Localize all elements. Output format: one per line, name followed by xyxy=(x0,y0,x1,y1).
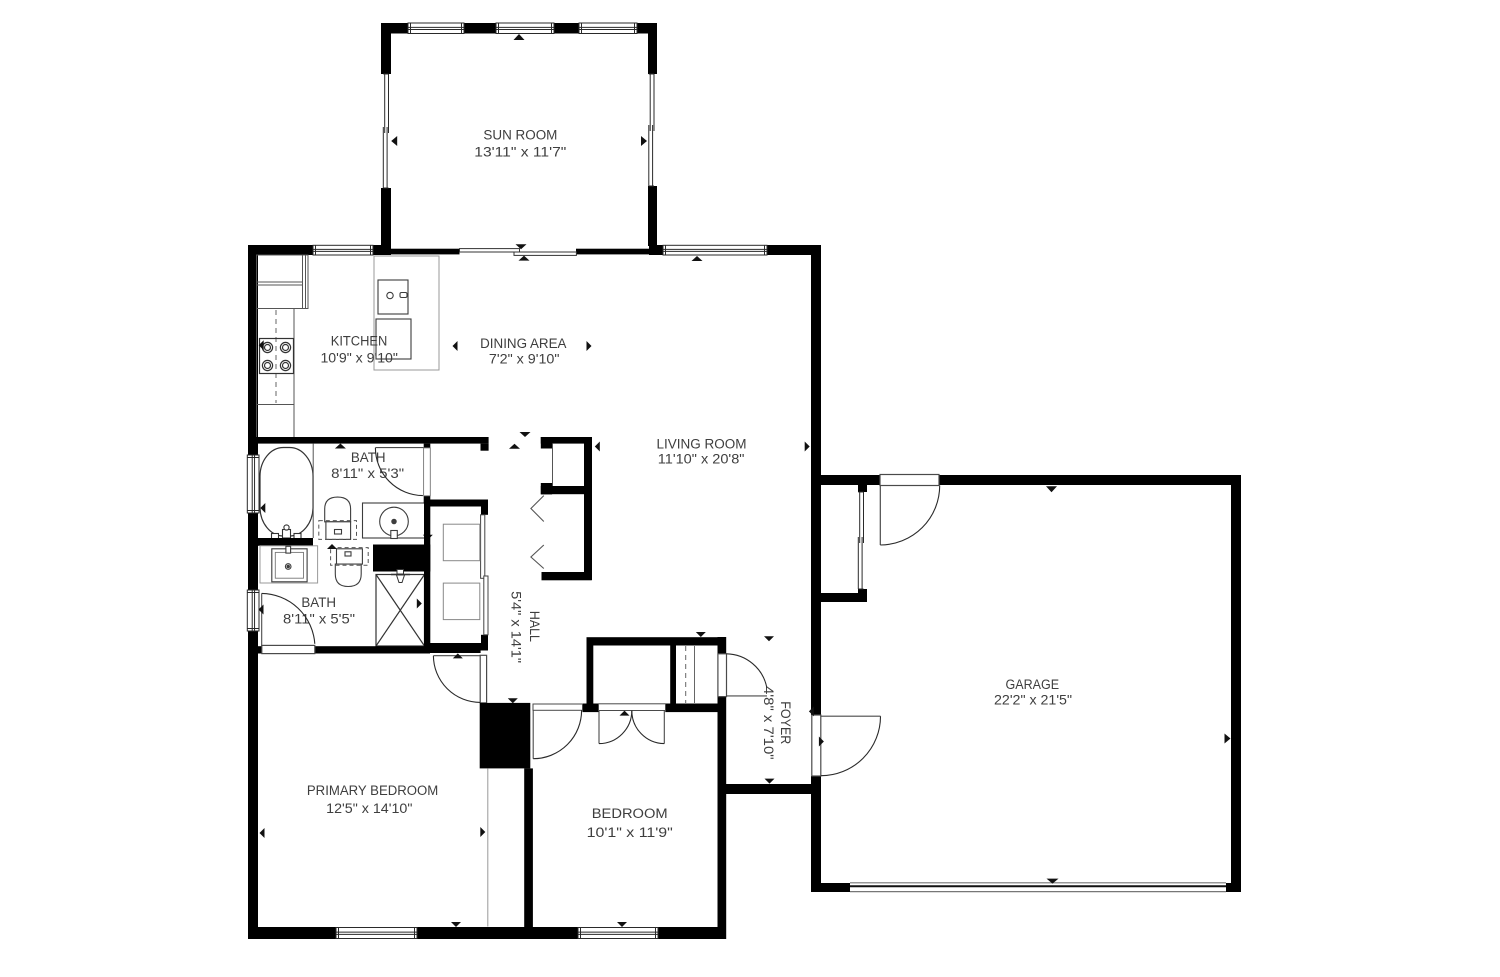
svg-text:10'9" x 9'10": 10'9" x 9'10" xyxy=(320,350,398,366)
svg-text:10'1" x 11'9": 10'1" x 11'9" xyxy=(587,825,673,841)
svg-text:11'10" x 20'8": 11'10" x 20'8" xyxy=(658,452,745,468)
svg-text:DINING AREA: DINING AREA xyxy=(480,336,567,352)
svg-text:BATH: BATH xyxy=(351,450,386,466)
svg-text:FOYER: FOYER xyxy=(777,701,793,744)
svg-text:LIVING ROOM: LIVING ROOM xyxy=(657,436,747,452)
svg-text:BATH: BATH xyxy=(301,595,336,611)
svg-text:8'11" x 5'3": 8'11" x 5'3" xyxy=(331,466,404,482)
svg-text:12'5" x 14'10": 12'5" x 14'10" xyxy=(326,801,412,817)
svg-text:HALL: HALL xyxy=(526,611,542,642)
svg-text:8'11" x 5'5": 8'11" x 5'5" xyxy=(283,612,355,628)
svg-text:22'2" x 21'5": 22'2" x 21'5" xyxy=(994,693,1072,709)
svg-text:KITCHEN: KITCHEN xyxy=(331,333,388,349)
svg-text:4'8" x 7'10": 4'8" x 7'10" xyxy=(760,686,776,760)
svg-text:SUN ROOM: SUN ROOM xyxy=(483,128,557,144)
svg-text:BEDROOM: BEDROOM xyxy=(592,806,668,822)
svg-text:5'4" x 14'1": 5'4" x 14'1" xyxy=(507,591,523,663)
svg-text:PRIMARY BEDROOM: PRIMARY BEDROOM xyxy=(307,783,438,799)
svg-text:GARAGE: GARAGE xyxy=(1006,677,1060,693)
svg-text:13'11" x 11'7": 13'11" x 11'7" xyxy=(474,145,566,161)
svg-text:7'2" x 9'10": 7'2" x 9'10" xyxy=(489,351,560,367)
